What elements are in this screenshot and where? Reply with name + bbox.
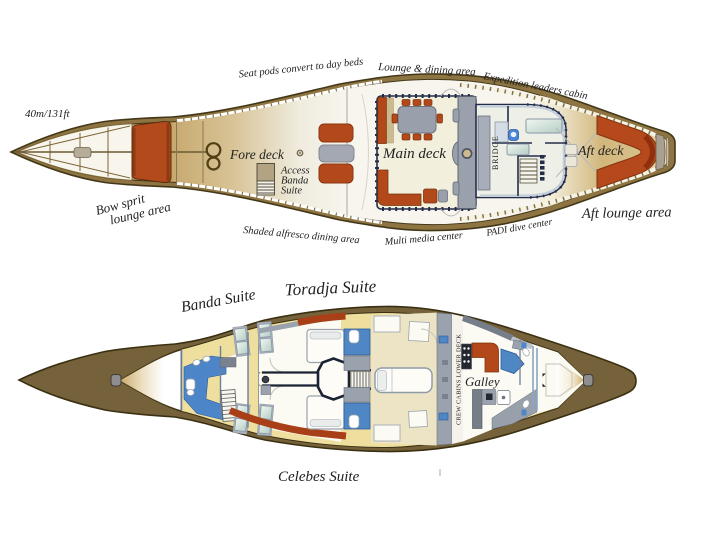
svg-text:Galley: Galley xyxy=(465,374,500,389)
svg-text:Toradja Suite: Toradja Suite xyxy=(284,277,377,300)
svg-text:BRIDGE: BRIDGE xyxy=(491,135,500,170)
svg-text:40m/131ft: 40m/131ft xyxy=(25,108,71,120)
svg-text:Main deck: Main deck xyxy=(382,146,446,162)
svg-text:Celebes Suite: Celebes Suite xyxy=(278,469,360,485)
svg-text:Suite: Suite xyxy=(281,186,302,197)
svg-text:Aft lounge area: Aft lounge area xyxy=(581,204,672,222)
svg-text:Fore deck: Fore deck xyxy=(229,147,285,162)
svg-text:CREW CABINS LOWER DECK: CREW CABINS LOWER DECK xyxy=(456,334,463,425)
svg-text:Aft deck: Aft deck xyxy=(577,144,624,159)
